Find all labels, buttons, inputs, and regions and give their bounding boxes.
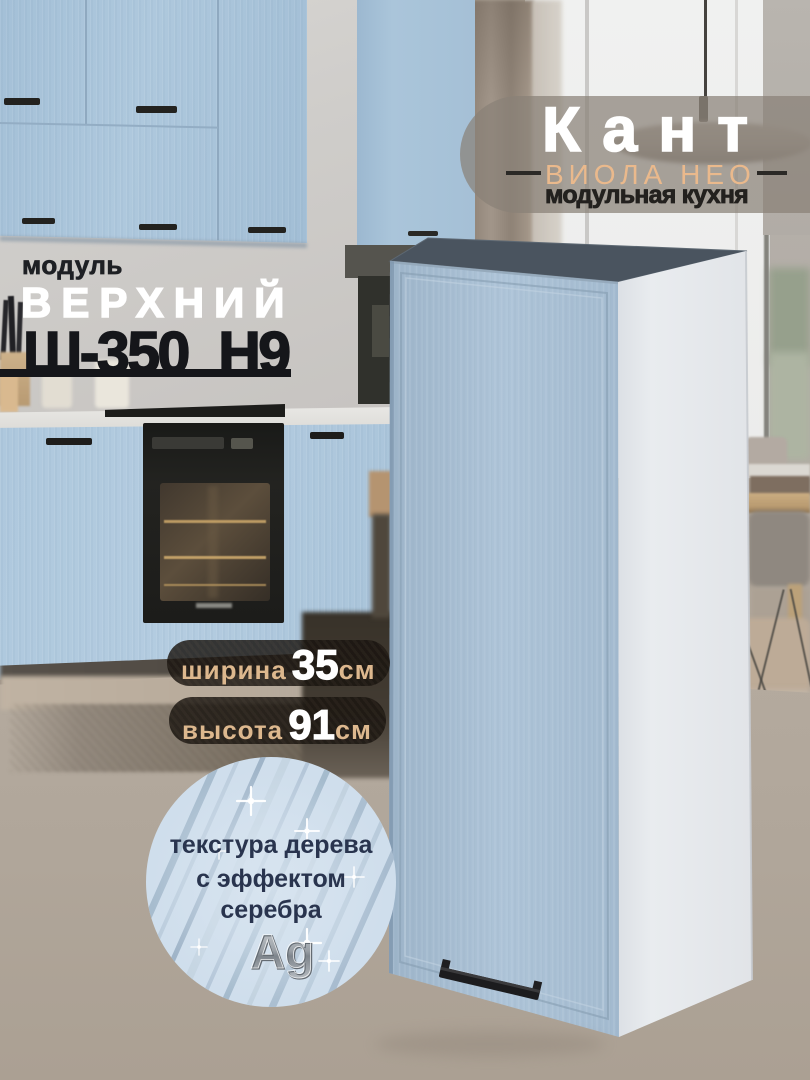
svg-text:серебра: серебра: [220, 896, 322, 924]
svg-text:текстура дерева: текстура дерева: [170, 831, 374, 859]
svg-text:Ag: Ag: [250, 926, 314, 979]
svg-text:с эффектом: с эффектом: [196, 865, 346, 893]
